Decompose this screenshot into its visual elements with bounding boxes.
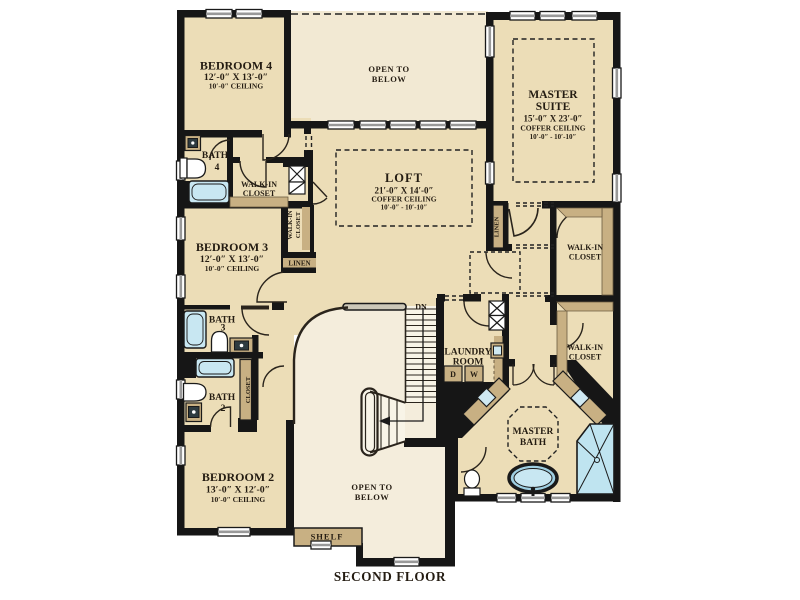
svg-text:BATH: BATH [202,151,229,161]
svg-text:SUITE: SUITE [536,101,571,113]
svg-text:SECOND FLOOR: SECOND FLOOR [334,569,446,584]
svg-text:15′-0″ X 23′-0″: 15′-0″ X 23′-0″ [524,114,583,124]
svg-text:WALK-IN: WALK-IN [567,343,603,352]
svg-text:WALK-IN: WALK-IN [287,210,294,240]
svg-text:2: 2 [221,404,226,414]
svg-text:CLOSET: CLOSET [569,353,602,362]
svg-text:BEDROOM 3: BEDROOM 3 [196,240,268,254]
svg-text:LOFT: LOFT [385,171,423,185]
svg-text:BATH: BATH [209,393,236,403]
svg-text:OPEN TO: OPEN TO [351,482,392,492]
svg-text:BATH: BATH [520,438,547,448]
svg-text:3: 3 [221,324,226,334]
svg-text:COFFER CEILING: COFFER CEILING [520,124,585,133]
svg-text:MASTER: MASTER [528,89,578,101]
svg-text:BEDROOM 4: BEDROOM 4 [200,59,272,73]
svg-text:D: D [450,370,456,379]
svg-text:DN: DN [415,303,427,312]
svg-text:LINEN: LINEN [288,260,310,268]
svg-text:10′-0″ - 10′-10″: 10′-0″ - 10′-10″ [381,204,428,212]
svg-text:LINEN: LINEN [494,216,501,237]
svg-text:BELOW: BELOW [372,74,407,84]
svg-text:WALK-IN: WALK-IN [241,180,277,189]
svg-text:10′-0″ CEILING: 10′-0″ CEILING [209,82,264,91]
svg-text:BEDROOM 2: BEDROOM 2 [202,470,274,484]
svg-text:W: W [470,370,478,379]
svg-text:SHELF: SHELF [311,532,344,542]
svg-text:COFFER CEILING: COFFER CEILING [371,195,436,204]
svg-text:WALK-IN: WALK-IN [567,243,603,252]
svg-text:ROOM: ROOM [453,358,484,368]
svg-text:CLOSET: CLOSET [569,253,602,262]
svg-text:BELOW: BELOW [355,492,390,502]
svg-text:CLOSET: CLOSET [243,189,276,198]
svg-text:CLOSET: CLOSET [245,376,252,403]
svg-text:OPEN TO: OPEN TO [368,64,409,74]
svg-text:4: 4 [215,163,220,173]
svg-text:CLOSET: CLOSET [295,211,302,238]
svg-text:10′-0″ - 10′-10″: 10′-0″ - 10′-10″ [530,133,577,141]
svg-text:13′-0″ X 12′-0″: 13′-0″ X 12′-0″ [206,485,270,496]
svg-text:LAUNDRY: LAUNDRY [444,348,491,358]
svg-text:MASTER: MASTER [513,427,554,437]
svg-text:10′-0″ CEILING: 10′-0″ CEILING [205,264,260,273]
svg-text:10′-0″ CEILING: 10′-0″ CEILING [211,495,266,504]
